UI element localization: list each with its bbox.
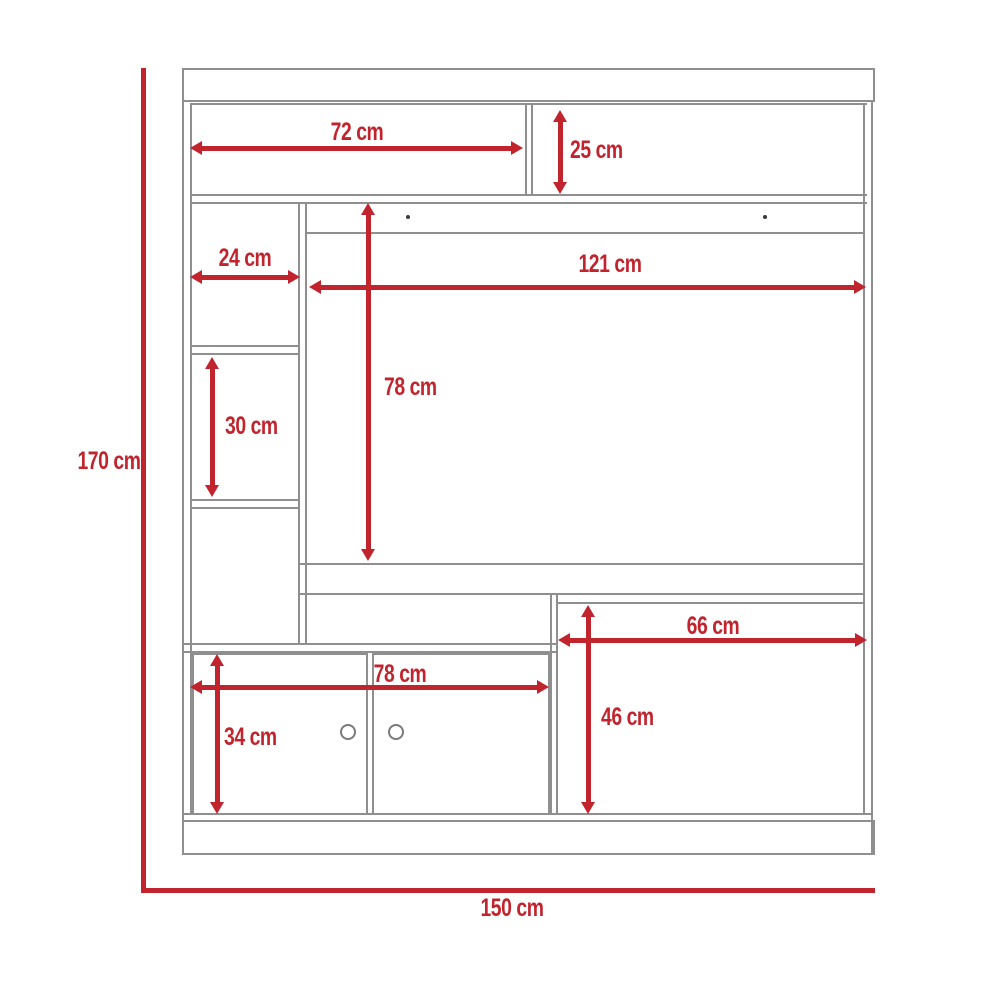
overall-height-guide-line xyxy=(141,68,146,893)
top-inner-line xyxy=(190,103,867,105)
dim-label-overall-width: 150 cm xyxy=(468,896,556,921)
side-shelf-2-bottom xyxy=(190,507,300,509)
arrowhead-left-icon xyxy=(190,270,202,284)
dim-arrow-tv-opening-height xyxy=(361,203,375,561)
arrowhead-down-icon xyxy=(581,802,595,814)
arrowhead-right-icon xyxy=(854,280,866,294)
side-column-divider-left xyxy=(298,202,300,645)
dim-arrow-side-compartment-height xyxy=(205,357,219,497)
tv-rail-bottom-line xyxy=(306,232,865,234)
side-shelf-1-top xyxy=(190,345,300,347)
arrowhead-down-icon xyxy=(553,182,567,194)
arrowhead-right-icon xyxy=(537,680,549,694)
arrowhead-right-icon xyxy=(288,270,300,284)
arrowhead-right-icon xyxy=(511,141,523,155)
upper-shelf-line-bottom xyxy=(190,202,867,204)
arrowhead-down-icon xyxy=(205,485,219,497)
arrow-line xyxy=(197,275,293,280)
side-shelf-1-bottom xyxy=(190,353,300,355)
arrowhead-left-icon xyxy=(558,633,570,647)
upper-divider-right xyxy=(531,103,533,196)
dim-arrow-tv-opening-width xyxy=(309,280,866,294)
dim-label-top-right-shelf-height: 25 cm xyxy=(570,138,623,163)
arrowhead-left-icon xyxy=(190,680,202,694)
shelf-pin-dot-right xyxy=(763,215,767,219)
right-compartment-top-line xyxy=(556,602,865,604)
arrow-line xyxy=(316,285,859,290)
arrowhead-down-icon xyxy=(210,802,224,814)
side-column-divider-right xyxy=(305,202,307,645)
furniture-dimension-diagram: 72 cm 25 cm 24 cm 121 cm 78 cm 30 cm 78 … xyxy=(0,0,1000,1000)
arrowhead-left-icon xyxy=(309,280,321,294)
right-inner-panel xyxy=(863,103,865,815)
dim-label-right-compartment-height: 46 cm xyxy=(601,705,654,730)
tv-floor-bottom-line xyxy=(298,593,865,595)
arrowhead-down-icon xyxy=(361,549,375,561)
left-outer-panel xyxy=(182,100,184,853)
dim-label-side-compartment-height: 30 cm xyxy=(225,414,278,439)
arrow-line xyxy=(366,210,371,554)
dim-label-top-shelf-width: 72 cm xyxy=(317,120,396,145)
arrowhead-up-icon xyxy=(553,110,567,122)
right-compartment-left-wall-inner xyxy=(556,595,558,815)
dim-label-overall-height: 170 cm xyxy=(65,449,153,474)
arrow-line xyxy=(197,146,516,151)
dim-label-tv-opening-width: 121 cm xyxy=(566,252,654,277)
dim-label-side-column-width: 24 cm xyxy=(205,246,284,271)
upper-shelf-line-top xyxy=(190,194,867,196)
tv-floor-top-line xyxy=(298,563,865,565)
door-knob-left xyxy=(340,724,356,740)
dim-arrow-cabinet-height xyxy=(210,654,224,814)
arrowhead-up-icon xyxy=(205,357,219,369)
dim-label-tv-opening-height: 78 cm xyxy=(384,375,437,400)
base-plinth xyxy=(182,820,875,855)
arrowhead-up-icon xyxy=(361,203,375,215)
dim-label-right-compartment-width: 66 cm xyxy=(673,614,752,639)
arrowhead-up-icon xyxy=(581,605,595,617)
arrowhead-left-icon xyxy=(190,141,202,155)
arrow-line xyxy=(215,661,220,807)
overall-width-guide-line xyxy=(141,888,875,893)
side-shelf-2-top xyxy=(190,499,300,501)
upper-divider-left xyxy=(525,103,527,196)
cabinet-top-line-upper xyxy=(182,643,558,645)
dim-label-cabinet-height: 34 cm xyxy=(224,725,277,750)
dim-arrow-right-compartment-height xyxy=(581,605,595,814)
right-outer-panel xyxy=(871,100,873,853)
right-compartment-left-wall-outer xyxy=(550,595,552,815)
dim-arrow-side-column-width xyxy=(190,270,300,284)
dim-label-cabinet-width: 78 cm xyxy=(360,662,439,687)
shelf-pin-dot-left xyxy=(406,215,410,219)
cabinet-bottom-line xyxy=(184,813,871,815)
arrowhead-up-icon xyxy=(210,654,224,666)
dim-arrow-top-right-shelf-height xyxy=(553,110,567,194)
arrow-line xyxy=(558,117,563,187)
arrowhead-right-icon xyxy=(855,633,867,647)
top-panel xyxy=(182,68,875,102)
arrow-line xyxy=(210,364,215,490)
door-knob-right xyxy=(388,724,404,740)
arrow-line xyxy=(586,612,591,807)
